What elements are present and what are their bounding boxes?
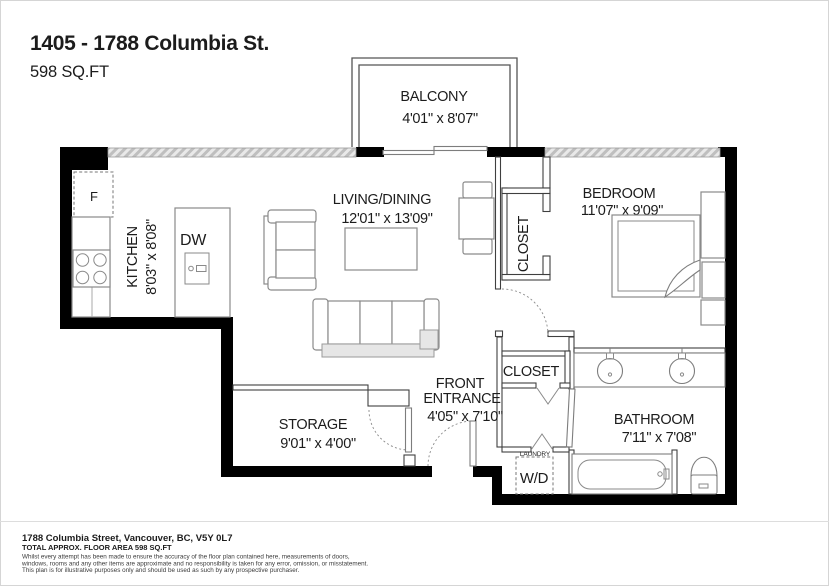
dresser	[701, 192, 725, 258]
window	[108, 148, 356, 157]
coffee-table	[345, 228, 417, 270]
storage-door-leaf	[406, 408, 412, 452]
living-dining: LIVING/DINING 12'01" x 13'09"	[264, 182, 494, 357]
balcony-sliding-door	[383, 147, 487, 155]
balcony-label: BALCONY	[400, 89, 468, 105]
bedroom-door-swing	[502, 289, 548, 335]
washer-dryer-label: W/D	[520, 470, 549, 487]
hall-closet-label: CLOSET	[503, 364, 560, 380]
toilet-bowl	[691, 457, 717, 476]
front-entrance: FRONT ENTRANCE 4'05" x 7'10"	[423, 376, 503, 425]
laundry-label: LAUNDRY	[520, 451, 551, 458]
wall-segment	[356, 147, 384, 157]
plan-footer: 1788 Columbia Street, Vancouver, BC, V5Y…	[0, 522, 829, 575]
sofa-front	[322, 344, 434, 357]
vanity-counter	[574, 353, 725, 387]
sofa-cushion	[328, 301, 360, 344]
floor-plan-page: 1405 - 1788 Columbia St. 598 SQ.FT BALCO…	[0, 0, 829, 586]
kitchen-dims: 8'03" x 8'08"	[144, 219, 160, 295]
floor-plan-drawing: 1405 - 1788 Columbia St. 598 SQ.FT BALCO…	[0, 0, 829, 586]
wall-segment	[60, 317, 233, 329]
wall-segment	[543, 256, 550, 275]
dining-chair	[463, 239, 492, 254]
wall-segment	[548, 331, 574, 337]
loveseat-cushion	[276, 222, 315, 250]
plan-header: 1405 - 1788 Columbia St. 598 SQ.FT	[30, 32, 269, 81]
sliding-door-panel	[383, 151, 434, 155]
sofa-cushion	[392, 301, 424, 344]
balcony: BALCONY 4'01" x 8'07"	[352, 58, 517, 147]
bathroom: BATHROOM 7'11" x 7'08"	[572, 348, 725, 494]
wall-segment	[487, 147, 545, 157]
loveseat	[264, 210, 316, 290]
bathroom-door-leaf	[566, 389, 575, 447]
loveseat-cushion	[276, 250, 315, 278]
kitchen-label: KITCHEN	[125, 226, 141, 288]
total-area-label: 598 SQ.FT	[30, 63, 109, 81]
sliding-door-panel	[434, 147, 487, 151]
wall-segment	[221, 466, 432, 477]
wall-segment	[543, 194, 550, 212]
bedroom-cabinet	[701, 300, 725, 325]
wall-segment	[502, 351, 570, 356]
sink-basin	[598, 359, 623, 384]
wall-segment	[560, 383, 570, 388]
loveseat-arm	[268, 277, 316, 290]
nightstand	[702, 262, 725, 298]
wall-segment	[502, 275, 550, 281]
wall-segment	[496, 331, 503, 337]
balcony-dims: 4'01" x 8'07"	[402, 111, 478, 127]
bathroom-dims: 7'11" x 7'08"	[622, 430, 697, 446]
bathroom-label: BATHROOM	[614, 412, 694, 428]
wall-segment	[233, 385, 368, 390]
bedroom-closet: CLOSET	[502, 188, 550, 280]
fridge-label: F	[90, 189, 98, 204]
wall-segment	[496, 157, 501, 289]
wall-segment	[60, 147, 72, 329]
dining-table	[459, 198, 494, 239]
wall-segment	[725, 147, 737, 505]
living-dining-label: LIVING/DINING	[333, 192, 431, 208]
wall-segment	[502, 188, 550, 194]
dishwasher-label: DW	[180, 232, 207, 249]
bed	[612, 215, 700, 297]
toilet	[691, 457, 717, 494]
loveseat-back	[264, 216, 276, 284]
loveseat-arm	[268, 210, 316, 223]
laundry-bifold-door	[531, 434, 553, 450]
storage: STORAGE 9'01" x 4'00"	[279, 417, 356, 452]
bifold-door	[537, 388, 559, 404]
storage-door-header	[368, 390, 409, 406]
sofa	[313, 299, 439, 357]
page-title: 1405 - 1788 Columbia St.	[30, 32, 269, 55]
door-jamb	[404, 455, 415, 466]
front-door-leaf	[470, 421, 476, 466]
footer-total-area: TOTAL APPROX. FLOOR AREA 598 SQ.FT	[22, 543, 172, 552]
kitchen: F DW KITCHEN 8'03" x 8'08"	[72, 172, 230, 317]
wall-segment	[672, 450, 677, 494]
wall-segment	[502, 188, 507, 280]
sofa-cushion	[360, 301, 392, 344]
laundry: LAUNDRY W/D	[516, 434, 553, 494]
bedroom-label: BEDROOM	[583, 186, 656, 202]
storage-dims: 9'01" x 4'00"	[280, 436, 356, 452]
front-entrance-dims: 4'05" x 7'10"	[427, 409, 503, 425]
storage-label: STORAGE	[279, 417, 348, 433]
wall-segment	[502, 383, 536, 388]
bedroom: BEDROOM 11'07" x 9'09"	[581, 186, 725, 325]
dining-chair	[463, 182, 492, 198]
wall-segment	[553, 447, 569, 452]
wall-segment	[221, 317, 233, 477]
front-entrance-label-line1: FRONT	[436, 376, 485, 392]
footer-disclaimer-line: This plan is for illustrative purposes o…	[22, 567, 299, 574]
wall-segment	[543, 157, 550, 188]
wall-segment	[574, 348, 725, 353]
sink-basin	[670, 359, 695, 384]
storage-door-swing	[369, 410, 409, 450]
kitchen-island	[175, 208, 230, 317]
bathtub	[572, 454, 672, 494]
sofa-arm	[313, 299, 328, 350]
bedroom-closet-label: CLOSET	[516, 215, 532, 272]
living-dining-dims: 12'01" x 13'09"	[341, 211, 432, 227]
front-entrance-label-line2: ENTRANCE	[423, 391, 501, 407]
balcony-inner-wall	[359, 65, 510, 147]
window	[545, 148, 720, 157]
wall-segment	[492, 494, 737, 505]
dining-set	[459, 182, 494, 254]
side-table	[420, 330, 438, 349]
front-door-swing	[428, 421, 473, 466]
hall-closet: CLOSET	[502, 351, 570, 404]
